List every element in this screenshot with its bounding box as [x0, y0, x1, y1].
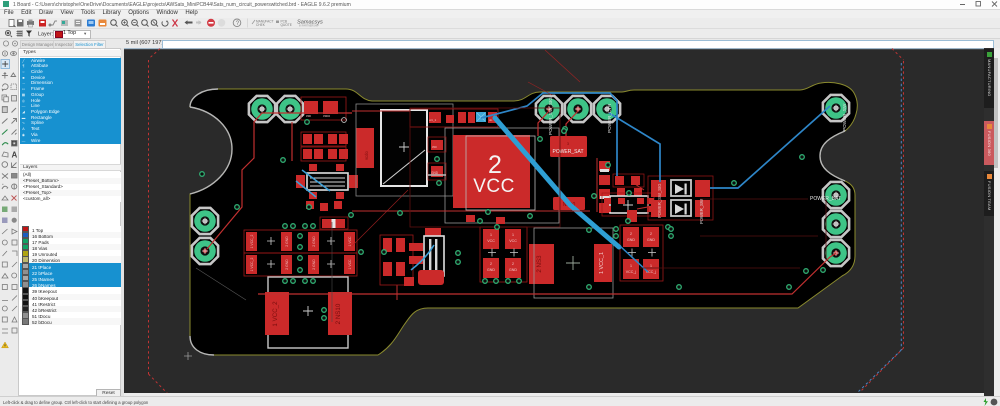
svg-text:POWER_SW: POWER_SW: [842, 103, 847, 131]
svg-text:2: 2: [512, 262, 514, 266]
svg-text:POWER_BAT: POWER_BAT: [810, 196, 841, 202]
svg-text:2 GND: 2 GND: [285, 259, 289, 270]
svg-text:IN PARTNERSHIP: IN PARTNERSHIP: [299, 25, 319, 28]
svg-text:vcc: vcc: [306, 114, 311, 118]
svg-text:1: 1: [490, 233, 492, 237]
svg-text:1 VCC_2: 1 VCC_2: [272, 301, 279, 327]
svg-text:1 VCC_1: 1 VCC_1: [599, 252, 605, 274]
svg-text:vct_1: vct_1: [429, 118, 437, 122]
svg-text:POWER_SW_SIG: POWER_SW_SIG: [657, 184, 662, 218]
svg-text:POWER_SW_SIG: POWER_SW_SIG: [548, 97, 553, 135]
svg-text:GND: GND: [487, 268, 495, 272]
svg-text:GND: GND: [627, 238, 635, 242]
svg-text:1 VCC: 1 VCC: [348, 236, 352, 247]
svg-text:2: 2: [490, 262, 492, 266]
svg-text:1: 1: [512, 233, 514, 237]
svg-text:2 GND: 2 GND: [285, 236, 289, 247]
svg-text:POWER_SW: POWER_SW: [699, 199, 704, 224]
svg-text:VCC: VCC: [473, 176, 515, 197]
svg-text:do: do: [489, 118, 493, 122]
svg-text:2 GND: 2 GND: [312, 236, 316, 247]
svg-text:POWER_SAT: POWER_SAT: [552, 149, 583, 155]
svg-text:1: 1: [650, 264, 652, 268]
svg-text:POWER_CTR: POWER_CTR: [607, 103, 612, 133]
svg-text:QUOTE: QUOTE: [281, 23, 292, 27]
svg-text:1 VCC: 1 VCC: [348, 259, 352, 270]
svg-text:VCC: VCC: [487, 239, 495, 243]
svg-text:2: 2: [630, 232, 632, 236]
svg-text:vcco: vcco: [323, 114, 330, 118]
svg-text:2: 2: [488, 151, 502, 179]
svg-text:2 NS10: 2 NS10: [335, 303, 342, 324]
svg-text:GND: GND: [509, 268, 517, 272]
svg-text:1 VCC_2: 1 VCC_2: [250, 258, 254, 272]
svg-text:1: 1: [630, 264, 632, 268]
svg-text:Layer:: Layer:: [38, 31, 53, 37]
svg-text:vcc: vcc: [432, 145, 437, 149]
svg-text:1 VCC_2: 1 VCC_2: [250, 235, 254, 249]
svg-text:VCC: VCC: [509, 239, 517, 243]
svg-text:A: A: [12, 151, 18, 160]
svg-text:2 NS3: 2 NS3: [536, 255, 543, 273]
svg-text:VCC_|: VCC_|: [626, 270, 637, 274]
svg-text:2: 2: [650, 232, 652, 236]
svg-text:2 GND: 2 GND: [312, 259, 316, 270]
svg-text:vcdo: vcdo: [364, 150, 369, 160]
svg-text:GND: GND: [647, 238, 655, 242]
svg-text:CHEK: CHEK: [256, 23, 266, 27]
